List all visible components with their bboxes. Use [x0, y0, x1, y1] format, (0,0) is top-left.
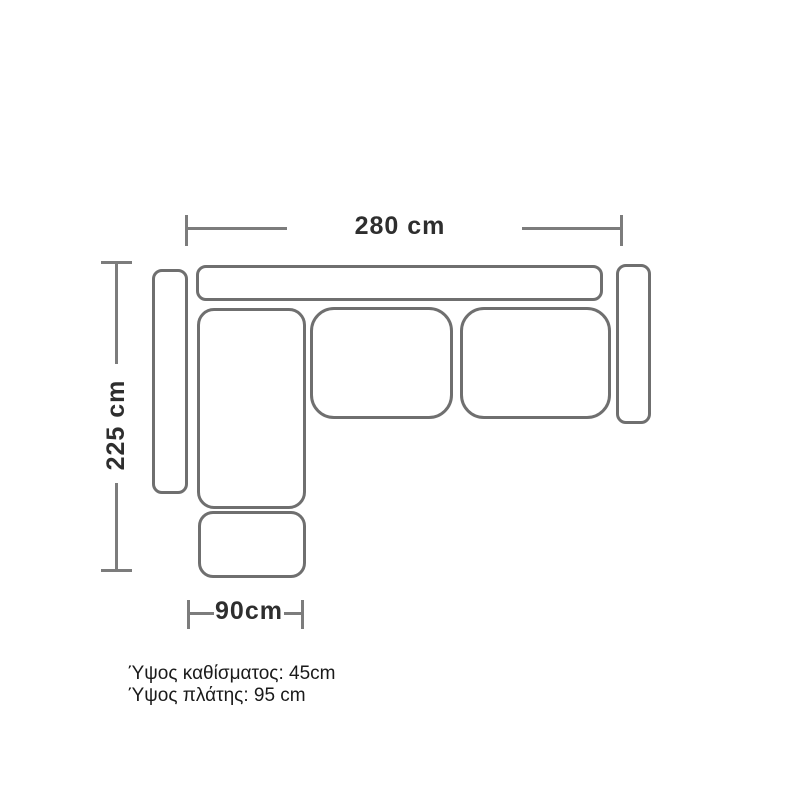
- sofa-footstool: [198, 511, 306, 578]
- depth-dimension-label: 225 cm: [103, 345, 129, 505]
- sofa-chaise-seat: [197, 308, 306, 509]
- chaise-width-dimension-label: 90cm: [209, 597, 289, 626]
- width-dimension-label: 280 cm: [320, 212, 480, 241]
- dimension-notes: Ύψος καθίσματος: 45cm Ύψος πλάτης: 95 cm: [128, 663, 335, 707]
- sofa-right-armrest: [616, 264, 651, 424]
- depth-dimension-line-bottom: [115, 483, 118, 571]
- sofa-left-armrest: [152, 269, 188, 494]
- width-dimension-tick-right: [620, 215, 623, 246]
- width-dimension-line-right: [522, 227, 622, 230]
- width-dimension-line-left: [186, 227, 287, 230]
- sofa-right-seat-cushion: [460, 307, 611, 419]
- back-height-note: Ύψος πλάτης: 95 cm: [128, 685, 335, 707]
- sofa-dimension-diagram: 280 cm 225 cm 90cm Ύψος καθίσματος: 45cm…: [0, 0, 800, 800]
- sofa-backrest: [196, 265, 603, 301]
- chaise-width-dimension-tick-right: [301, 600, 304, 629]
- width-dimension-tick-left: [185, 215, 188, 246]
- depth-dimension-tick-bottom: [101, 569, 132, 572]
- seat-height-note: Ύψος καθίσματος: 45cm: [128, 663, 335, 685]
- sofa-middle-seat-cushion: [310, 307, 453, 419]
